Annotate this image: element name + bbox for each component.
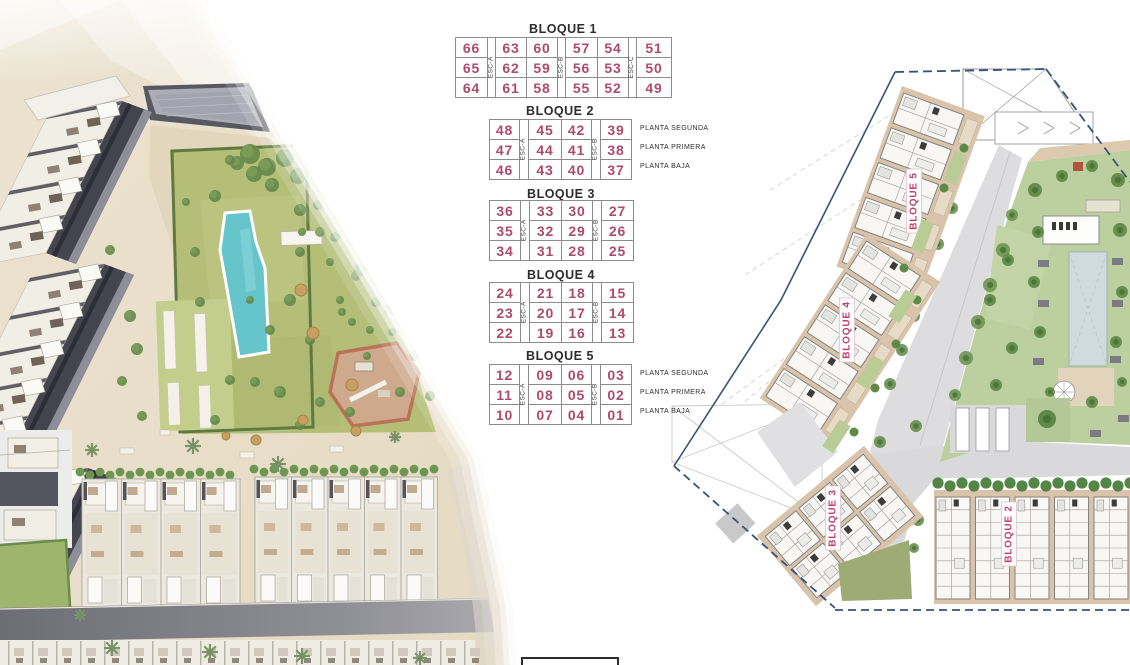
svg-text:BLOQUE 3: BLOQUE 3 xyxy=(828,489,839,547)
svg-text:BLOQUE 2: BLOQUE 2 xyxy=(1004,505,1015,563)
svg-text:BLOQUE 4: BLOQUE 4 xyxy=(842,301,853,359)
svg-text:BLOQUE 5: BLOQUE 5 xyxy=(909,172,920,230)
